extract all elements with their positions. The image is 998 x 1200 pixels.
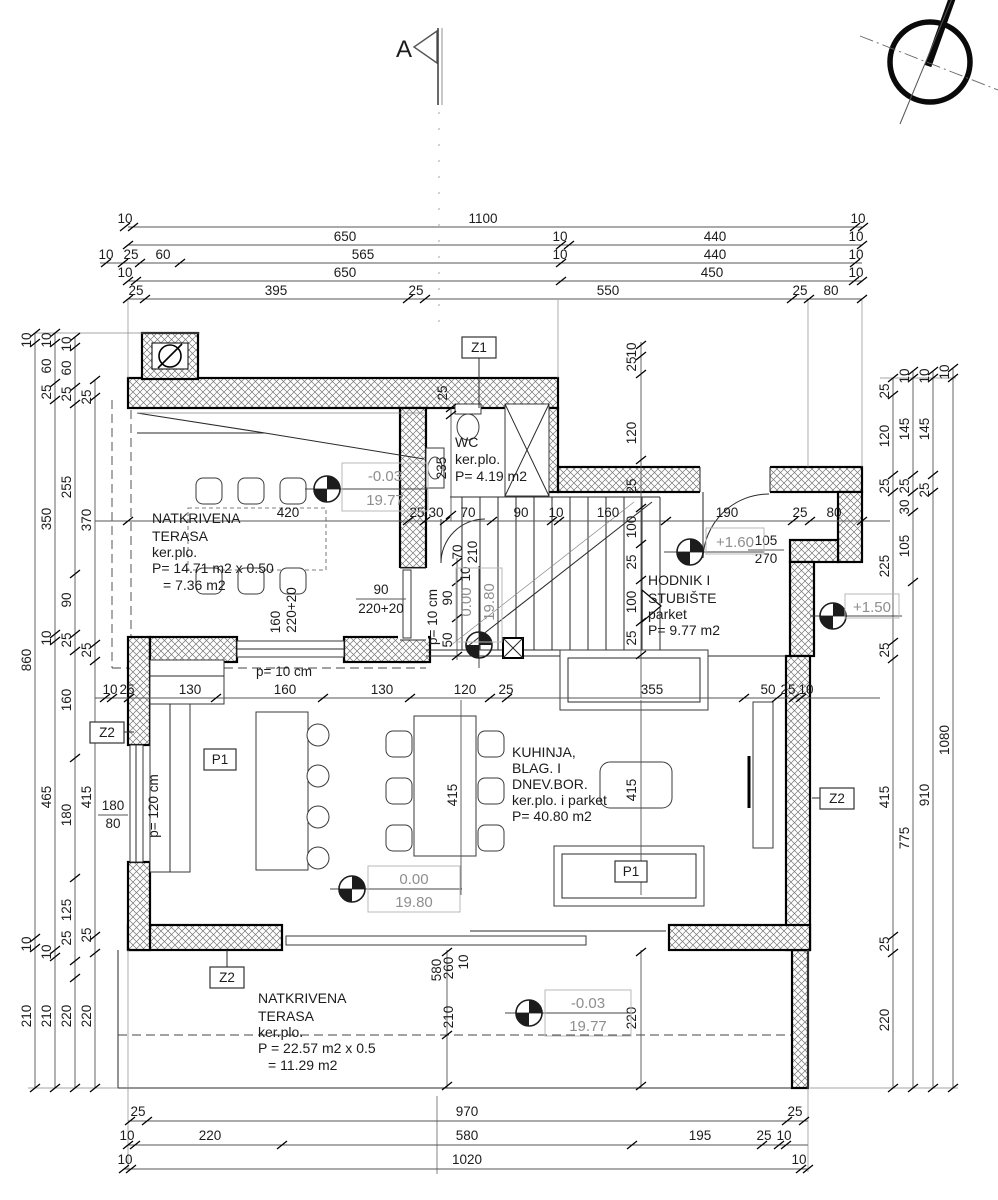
floor-plan-drawing: A [0,0,998,1200]
dim-label: 30 [897,499,912,514]
dim-label: 50 [440,632,455,647]
dim-label: 10 [798,682,813,697]
dim-label: 440 [704,229,727,244]
dim-label: 120 [454,682,477,697]
wall-hall-right [790,562,814,656]
dim-label: 650 [334,229,357,244]
dim-label: 180 [59,804,74,827]
dim-label: 775 [897,827,912,850]
room-label-line: P= 9.77 m2 [648,622,720,638]
level-marker-icon [820,603,846,629]
dim-label: 210 [441,1006,456,1029]
dim-label: 105 [897,535,912,558]
room-label-line: ker.plo. [258,1024,303,1040]
annotation-label: 80 [105,816,120,831]
dim-label: 25 [756,1128,771,1143]
dim-label: 25 [59,632,74,647]
dim-label: 220 [59,1005,74,1028]
dim-label: 25 [624,356,639,371]
room-label-line: TERASA [258,1008,315,1024]
dim-label: 10 [59,336,74,351]
dim-label: 160 [59,689,74,712]
room-label-line: ker.plo. [152,544,197,560]
dim-label: 160 [597,505,620,520]
level-value: 19.80 [395,894,433,911]
annotation-label: 270 [755,551,778,566]
dim-label: 10 [117,265,132,280]
dim-label: 10 [937,364,952,379]
level-value: 19.80 [481,583,498,621]
dim-label: 10 [848,265,863,280]
terrace-door-leaf [403,570,411,638]
dim-label: 90 [59,592,74,607]
dim-label: 10 [791,1152,806,1167]
dim-label: 25 [498,682,513,697]
bar-stool [307,806,329,828]
dim-label: 10 [458,566,473,581]
dim-label: 910 [917,784,932,807]
dim-label: 650 [334,265,357,280]
tv-console [753,702,773,848]
room-label-line: P= 4.19 m2 [455,468,527,484]
dim-label: 10 [548,505,563,520]
level-value: 0.00 [458,587,475,616]
dim-label: 195 [689,1128,712,1143]
dim-label: 130 [179,682,202,697]
dim-label: 25 [79,389,94,404]
room-label-line: WC [455,434,478,450]
wall-terrace-divider [400,408,426,568]
dim-label: 25 [917,482,932,497]
dim-label: 550 [597,283,620,298]
wall-terrace-bottom-a [150,637,237,662]
tag-z2: Z2 [99,725,115,740]
dim-label: 25 [435,385,450,400]
dim-label: 190 [716,505,739,520]
dim-label: 10 [117,211,132,226]
sofa [560,650,708,710]
dim-label: 25 [79,927,94,942]
dim-label: 10 [897,368,912,383]
room-label-line: ker.plo. [455,451,500,467]
level-value: +1.60 [716,534,754,551]
dim-label: 415 [624,779,639,802]
dim-label: 860 [19,649,34,672]
dim-label: 10 [552,247,567,262]
dim-labels-right: 25 120 25 225 25 415 25 220 10 145 25 30… [877,364,952,1031]
dim-label: 580 [456,1128,479,1143]
dim-label: 415 [445,784,460,807]
chair [478,778,504,804]
dim-label: 60 [39,358,54,373]
dim-label: 235 [434,457,449,480]
chimney [142,333,198,379]
annotation-label: p= 10 cm [256,664,312,679]
annotation-label: 220+20 [358,601,403,616]
dim-labels-top: 10 1100 10 650 10 440 10 10 25 60 565 10… [98,211,865,298]
dim-label: 25 [59,386,74,401]
dim-label: 350 [39,508,54,531]
dim-label: 120 [877,425,892,448]
level-value: 19.77 [569,1018,607,1035]
dim-label: 210 [39,1005,54,1028]
section-triangle-icon [414,31,437,63]
room-label-line: TERASA [152,528,209,544]
dim-label: 25 [408,283,423,298]
dim-label: 30 [428,505,443,520]
dim-label: 25 [79,642,94,657]
dim-label: 25 [877,936,892,951]
floor-plan-page: A [0,0,998,1200]
wall-bottom-right [669,925,810,950]
dim-label: 370 [79,509,94,532]
kitchen-island [256,712,308,870]
dim-label: 60 [155,247,170,262]
bar-stool [307,847,329,869]
dim-label: 10 [39,944,54,959]
dim-label: 260 [441,957,456,980]
dim-label: 50 [760,682,775,697]
entry-door-opening [700,465,770,494]
dim-label: 25 [130,1104,145,1119]
bar-stool [307,724,329,746]
dim-label: 10 [552,229,567,244]
dim-label: 25 [877,478,892,493]
terrace-side-wall [792,950,808,1088]
tag-z2: Z2 [219,970,235,985]
dim-label: 25 [128,283,143,298]
dim-label: 10 [19,936,34,951]
dim-label: 60 [59,360,74,375]
wall-jog-horiz [790,540,838,562]
dim-label: 220 [199,1128,222,1143]
dim-label: 25 [787,1104,802,1119]
dim-label: 160 [274,682,297,697]
level-marker-icon [466,632,492,658]
dim-label: 10 [98,247,113,262]
dim-label: 415 [79,786,94,809]
dim-label: 255 [59,476,74,499]
dim-label: 25 [624,554,639,569]
level-value: 19.77 [366,492,404,509]
dim-label: 25 [624,478,639,493]
level-value: +1.50 [853,599,891,616]
dim-label: 10 [850,211,865,226]
room-label-line: ker.plo. i parket [512,792,607,808]
dim-label: 970 [456,1104,479,1119]
dim-label: 25 [119,682,134,697]
wall-terrace-bottom-b [344,637,430,662]
level-marker-icon [677,539,703,565]
dim-label: 565 [352,247,375,262]
dim-label: 80 [823,283,838,298]
room-label-line: P= 14.71 m2 x 0.50 [152,560,274,576]
dim-label: 100 [624,516,639,539]
dim-label: 25 [624,630,639,645]
bar-stool [307,765,329,787]
dim-label: 145 [897,418,912,441]
annotation-label: 180 [102,798,125,813]
wall-jog-vert [838,492,862,562]
tag-p1: P1 [623,864,640,879]
room-label-line: BLAG. I [512,760,561,776]
dim-label: 25 [897,478,912,493]
dim-label: 130 [371,682,394,697]
dim-label: 25 [792,505,807,520]
dim-label: 415 [877,786,892,809]
wall-living-left-lower [128,862,150,950]
level-value: -0.03 [571,995,605,1012]
section-label: A [396,36,412,63]
dim-label: 10 [39,630,54,645]
chair [478,731,504,757]
room-label-line: = 11.29 m2 [268,1057,338,1073]
dim-label: 100 [624,591,639,614]
dim-labels-left: 10 860 10 210 10 60 25 350 10 465 10 210… [19,332,94,1027]
dim-label: 1100 [468,211,497,226]
dim-label: 10 [848,229,863,244]
dim-label: 125 [59,899,74,922]
tag-z1: Z1 [471,340,487,355]
tag-p1: P1 [212,752,229,767]
chair [478,825,504,851]
room-label-line: STUBIŠTE [648,590,716,606]
dim-label: 25 [39,384,54,399]
dim-label: 10 [776,1128,791,1143]
room-label-line: DNEV.BOR. [512,776,588,792]
dim-label: 10 [848,247,863,262]
dim-label: 25 [780,682,795,697]
dim-label: 465 [39,786,54,809]
dim-label: 10 [119,1128,134,1143]
level-marker-icon [314,476,340,502]
room-label-line: HODNIK I [648,572,710,588]
dim-label: 70 [460,505,475,520]
room-label-line: NATKRIVENA [258,990,347,1006]
annotation-label: 220+20 [284,587,299,632]
dim-label: 145 [917,418,932,441]
chair [280,478,306,504]
room-label-line: = 7.36 m2 [163,577,226,593]
dim-label: 220 [79,1005,94,1028]
dim-label: 10 [19,332,34,347]
level-marker-icon [339,876,365,902]
level-value: 0.00 [399,871,428,888]
annotation-label: 160 [268,611,283,634]
dim-label: 25 [59,930,74,945]
room-label-line: P = 22.57 m2 x 0.5 [258,1040,376,1056]
dim-label: 210 [19,1005,34,1028]
annotation-label: 70 [450,544,465,559]
annotation-label: 90 [373,582,388,597]
dim-label: 420 [277,505,300,520]
dim-label: 90 [440,590,455,605]
dim-label: 120 [624,422,639,445]
toilet-icon [455,404,481,414]
dim-label: 25 [877,383,892,398]
dim-label: 450 [701,265,724,280]
tag-z2: Z2 [829,791,845,806]
room-label-line: NATKRIVENA [152,510,241,526]
dim-label: 355 [641,682,664,697]
dim-label: 440 [704,247,727,262]
sliding-door [286,936,586,945]
north-arrow [860,0,998,124]
dim-label: 1020 [452,1152,482,1167]
dim-label: 25 [409,505,424,520]
dim-labels-bottom: 25 970 25 10 220 580 195 25 10 10 1020 1… [117,1104,806,1167]
dim-label: 225 [877,555,892,578]
chair [386,731,412,757]
room-label-line: KUHINJA, [512,744,576,760]
dim-label: 25 [877,642,892,657]
dim-label: 80 [826,505,841,520]
wall-top [128,378,558,408]
annotation-label: 105 [755,533,778,548]
chair [196,478,222,504]
dim-label: 25 [123,247,138,262]
room-label-line: P= 40.80 m2 [512,808,592,824]
dim-label: 395 [265,283,288,298]
dim-label: 90 [513,505,528,520]
wall-bottom-left [128,925,282,950]
dim-label: 10 [117,1152,132,1167]
chair [238,478,264,504]
dim-label: 220 [877,1009,892,1032]
dim-label: 25 [792,283,807,298]
level-marker-icon [516,1000,542,1026]
dim-label: 10 [456,954,471,969]
dim-label: 10 [39,332,54,347]
annotation-label: 210 [465,541,480,564]
dim-label: 1080 [937,725,952,755]
canopy-lines [137,413,424,459]
annotation-label: p= 10 cm [425,589,440,645]
chair [386,825,412,851]
chair [386,778,412,804]
level-value: -0.03 [368,468,402,485]
room-label-line: parket [648,606,687,622]
dim-label: 10 [624,342,639,357]
dim-label: 10 [917,368,932,383]
dim-label: 10 [102,682,117,697]
annotation-label: p= 120 cm [146,774,161,837]
